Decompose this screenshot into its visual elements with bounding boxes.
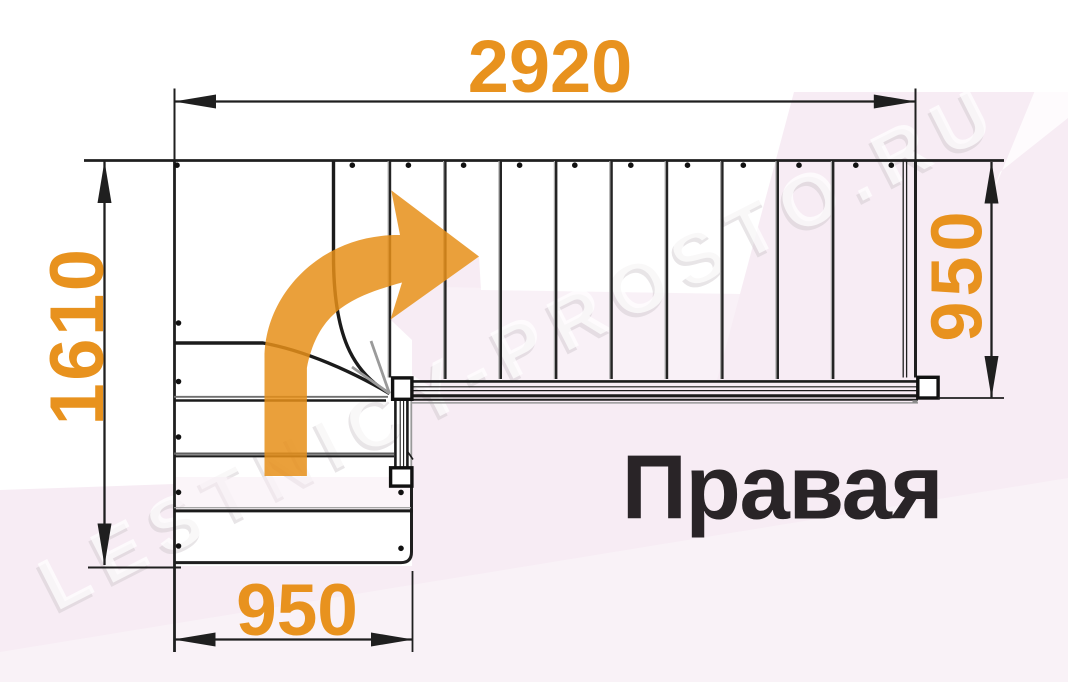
svg-text:950: 950: [236, 570, 358, 651]
svg-text:Правая: Правая: [622, 438, 942, 539]
svg-text:2920: 2920: [468, 25, 633, 108]
svg-text:1610: 1610: [35, 246, 120, 425]
svg-text:950: 950: [918, 206, 998, 341]
